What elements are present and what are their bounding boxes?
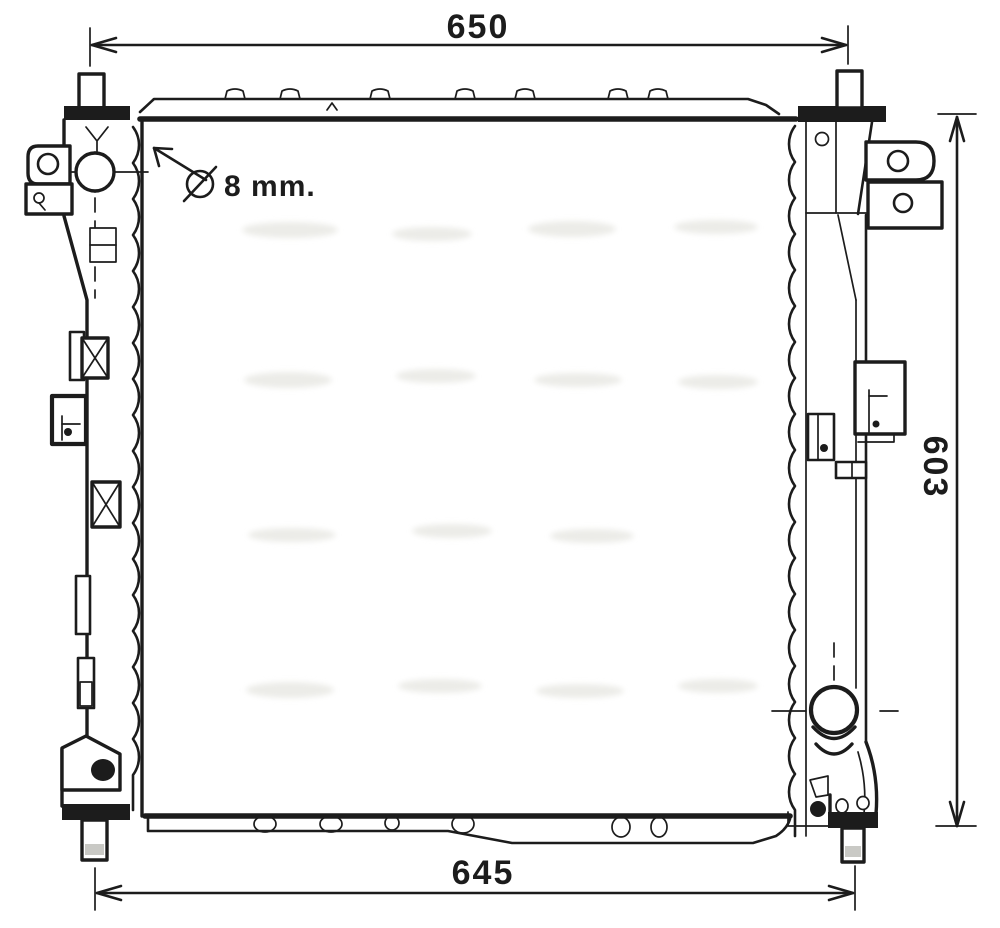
- clip-bracket-2: [92, 482, 120, 527]
- grommet-left: [91, 759, 115, 781]
- bracket-top-right-round: [866, 142, 934, 180]
- bracket-top-right-square: [868, 182, 942, 228]
- mount-pin-top-left: [79, 74, 104, 108]
- diameter-label: 8 mm.: [224, 170, 316, 203]
- bracket-upper-left-square: [26, 184, 72, 214]
- mount-base-bottom-left: [62, 804, 130, 820]
- mount-pin-top-right: [837, 71, 862, 108]
- outlet-opening: [811, 687, 857, 733]
- pin-band-bottom-left: [85, 844, 104, 855]
- dimension-bottom-width: 645: [95, 854, 855, 910]
- diameter-symbol: [184, 167, 216, 201]
- watermark-smudges: [242, 220, 758, 698]
- right-tank-wavy-edge: [789, 126, 795, 836]
- edge-tab-2: [78, 658, 94, 708]
- top-plate: [140, 99, 779, 114]
- radiator-technical-drawing: 650 645 603 8 mm.: [0, 0, 1000, 928]
- leader-line: [154, 148, 206, 180]
- mount-base-top-left: [64, 106, 130, 120]
- edge-tab-1: [76, 576, 90, 634]
- left-tank: [26, 74, 148, 860]
- dimension-label-top: 650: [447, 8, 510, 46]
- drawing-svg: 650 645 603 8 mm.: [0, 0, 1000, 928]
- diameter-annotation: 8 mm.: [154, 148, 316, 203]
- clip-mid-right: [808, 414, 834, 460]
- vent-mark: [86, 127, 108, 152]
- tank-hole-top-right: [816, 133, 829, 146]
- bottom-bracket-left: [62, 736, 120, 790]
- dimension-label-bottom: 645: [452, 854, 515, 892]
- clip-bracket-1: [70, 332, 108, 380]
- dimension-top-width: 650: [90, 8, 848, 66]
- square-bracket-left: [52, 396, 86, 444]
- bracket-upper-left-round: [28, 146, 70, 184]
- bottom-plate: [148, 818, 790, 843]
- pin-band-bottom-right: [845, 846, 861, 857]
- dimension-label-right: 603: [916, 436, 954, 499]
- bracket-mid-right: [855, 362, 905, 442]
- grommet-right: [810, 801, 826, 817]
- left-tank-wavy-edge: [133, 127, 139, 810]
- mount-base-bottom-right: [828, 812, 878, 828]
- edge-tab-right: [836, 462, 866, 478]
